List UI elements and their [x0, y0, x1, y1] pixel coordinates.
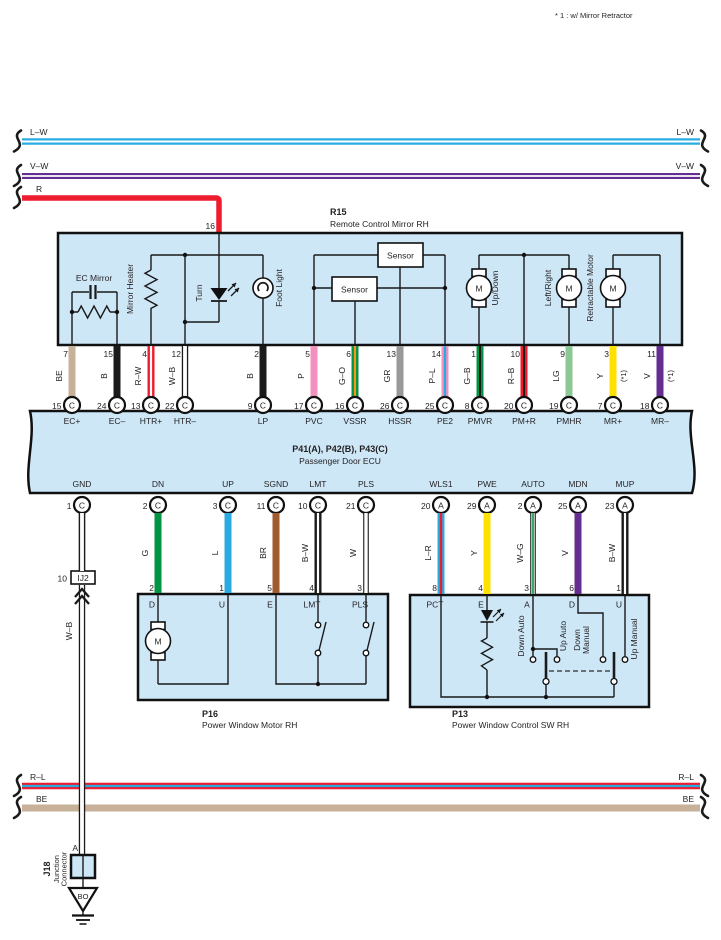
up-auto-contact [554, 657, 560, 663]
wire-color-label: B [245, 373, 255, 379]
r15-pin-number: 6 [346, 349, 351, 359]
wire-footnote-ref: (*1) [666, 369, 675, 382]
wire-color-label: Y [595, 373, 605, 379]
wire-color-label: BE [54, 370, 64, 382]
lmt-switch-contact [315, 622, 321, 628]
component-pin-label: A [524, 600, 530, 610]
connector-number: 1 [67, 501, 72, 511]
j18-pin-a: A [72, 843, 78, 853]
connector-letter: C [521, 401, 527, 411]
wire-color-label: W–B [167, 366, 177, 385]
sensor-upper-label: Sensor [387, 251, 414, 261]
connector-letter: C [657, 401, 663, 411]
ecu-pin-label: SGND [264, 479, 289, 489]
component-pin-label: PCT [427, 600, 444, 610]
wire-color-label: LG [551, 370, 561, 381]
retractable-motor-label: Retractable Motor [585, 254, 595, 322]
ecu-pin-label: PMVR [468, 416, 493, 426]
connector-letter: C [477, 401, 483, 411]
component-pin-label: E [267, 600, 273, 610]
connector-number: 26 [380, 401, 390, 411]
connector-letter: A [484, 501, 490, 511]
component-pin-label: PLS [352, 600, 368, 610]
ecu-pin-label: PM+R [512, 416, 536, 426]
wire-color-label: W–G [515, 543, 525, 562]
connector-letter: C [566, 401, 572, 411]
connector-letter: C [79, 501, 85, 511]
component-pin-number: 3 [357, 583, 362, 593]
svg-text:M: M [475, 284, 482, 294]
ecu-pin-label: EC+ [64, 416, 81, 426]
junction-connector-area: W–B IJ2 10 A J18 Junction Connector BO [42, 571, 97, 924]
component-pin-number: 4 [478, 583, 483, 593]
foot-light-label: Foot Light [274, 268, 284, 306]
component-pin-label: D [149, 600, 155, 610]
wire-color-label: G–B [462, 367, 472, 384]
r15-pin-number: 15 [104, 349, 114, 359]
up-down-label: Up/Down [490, 270, 500, 305]
wire-footnote-ref: (*1) [619, 369, 628, 382]
r15-pin-number: 5 [305, 349, 310, 359]
r15-pin-number: 14 [432, 349, 442, 359]
p13-title: Power Window Control SW RH [452, 720, 569, 730]
component-pin-label: U [616, 600, 622, 610]
down-manual-contact [600, 657, 606, 663]
connector-number: 25 [558, 501, 568, 511]
wire-color-label: B [99, 373, 109, 379]
connector-letter: C [182, 401, 188, 411]
connector-number: 9 [248, 401, 253, 411]
ecu-pin-label: PVC [305, 416, 322, 426]
ecu-pin-label: PWE [477, 479, 497, 489]
p13-id: P13 [452, 709, 468, 719]
component-pin-number: 1 [219, 583, 224, 593]
connector-letter: C [148, 401, 154, 411]
connector-number: 13 [131, 401, 141, 411]
down-auto-contact [530, 657, 536, 663]
up-auto-label: Up Auto [558, 621, 568, 652]
bus-label-vw-left: V–W [30, 161, 48, 171]
r15-pin-number: 10 [511, 349, 521, 359]
connector-number: 15 [52, 401, 62, 411]
wire-color-label: L–R [423, 545, 433, 561]
connector-letter: C [397, 401, 403, 411]
connector-letter: C [260, 401, 266, 411]
wire-color-label: G [140, 550, 150, 557]
connector-number: 24 [97, 401, 107, 411]
connector-number: 19 [549, 401, 559, 411]
r15-pin-number: 13 [387, 349, 397, 359]
ecu-pin-label: PLS [358, 479, 374, 489]
connector-letter: C [352, 401, 358, 411]
ecu-pin-label: VSSR [343, 416, 366, 426]
component-pin-label: E [478, 600, 484, 610]
wire-color-label: GR [382, 370, 392, 383]
bus-label-r-left: R [36, 184, 42, 194]
ij2-label: IJ2 [77, 573, 89, 583]
turn-label: Turn [194, 284, 204, 301]
component-pin-number: 4 [309, 583, 314, 593]
connector-number: 16 [335, 401, 345, 411]
connector-number: 2 [518, 501, 523, 511]
connector-number: 22 [165, 401, 175, 411]
wiring-diagram: * 1 : w/ Mirror Retractor L–W L–W V–W V–… [0, 0, 721, 940]
footnote: * 1 : w/ Mirror Retractor [555, 11, 633, 20]
component-pin-label: U [219, 600, 225, 610]
connector-number: 23 [605, 501, 615, 511]
p13-box [410, 595, 649, 707]
r15-id: R15 [330, 207, 347, 217]
bus-label-rl-left: R–L [30, 772, 46, 782]
ecu-pin-label: PMHR [556, 416, 581, 426]
ecu-pin-label: MDN [568, 479, 587, 489]
r15-title: Remote Control Mirror RH [330, 219, 429, 229]
connector-letter: C [315, 501, 321, 511]
up-manual-label: Up Manual [629, 618, 639, 659]
connector-number: 8 [465, 401, 470, 411]
r15-pin-number: 11 [647, 349, 656, 359]
wire-color-label: L [210, 550, 220, 555]
bus-label-be-left: BE [36, 794, 48, 804]
ecu-pin-label: UP [222, 479, 234, 489]
ij2-number: 10 [58, 574, 68, 584]
bus-r [22, 198, 219, 233]
ecu-pin-label: EC– [109, 416, 126, 426]
r15-pin-number: 3 [604, 349, 609, 359]
ecu-pin-label: DN [152, 479, 164, 489]
wire-color-label: V [642, 373, 652, 379]
wire-color-label: R–W [133, 367, 143, 386]
p16-id: P16 [202, 709, 218, 719]
r15-pin-number: 7 [63, 349, 68, 359]
component-pin-number: 3 [524, 583, 529, 593]
ecu-pin-label: MR+ [604, 416, 622, 426]
wb-wire-label: W–B [64, 621, 74, 640]
connector-number: 2 [143, 501, 148, 511]
connector-number: 11 [257, 501, 266, 511]
foot-light-bulb-icon [253, 278, 273, 298]
component-pin-number: 5 [267, 583, 272, 593]
bus-label-rl-right: R–L [678, 772, 694, 782]
component-pin-number: 1 [616, 583, 621, 593]
connector-letter: C [311, 401, 317, 411]
wire-color-label: P [296, 373, 306, 379]
ecu-pin-label: MR– [651, 416, 669, 426]
svg-text:M: M [609, 284, 616, 294]
connector-number: 17 [294, 401, 304, 411]
connector-number: 25 [425, 401, 435, 411]
component-pin-number: 6 [569, 583, 574, 593]
bus-label-lw-right: L–W [677, 127, 694, 137]
p16-title: Power Window Motor RH [202, 720, 297, 730]
component-pin-number: 2 [149, 583, 154, 593]
connector-letter: A [530, 501, 536, 511]
connector-number: 20 [504, 401, 514, 411]
ecu-title: Passenger Door ECU [299, 456, 381, 466]
r15-pin16-number: 16 [206, 221, 216, 231]
left-right-label: Left/Right [543, 269, 553, 306]
r15-pin-number: 9 [560, 349, 565, 359]
ecu-pin-label: PE2 [437, 416, 453, 426]
connector-number: 29 [467, 501, 477, 511]
connector-number: 20 [421, 501, 431, 511]
connector-number: 7 [598, 401, 603, 411]
connector-letter: C [363, 501, 369, 511]
wire-color-label: BR [258, 547, 268, 559]
r15-pin-number: 12 [172, 349, 182, 359]
connector-letter: C [225, 501, 231, 511]
connector-letter: C [442, 401, 448, 411]
wire-color-label: Y [469, 550, 479, 556]
component-pin-label: LMT [304, 600, 321, 610]
mirror-heater-label: Mirror Heater [125, 264, 135, 314]
j18-id: J18 [42, 861, 52, 876]
connector-letter: C [69, 401, 75, 411]
down-manual-label-2: Manual [581, 626, 591, 654]
connector-number: 10 [298, 501, 308, 511]
ecu-pin-label: LP [258, 416, 269, 426]
wire-color-label: P–L [427, 368, 437, 383]
ecu-id: P41(A), P42(B), P43(C) [292, 444, 388, 454]
ecu-pin-label: HTR+ [140, 416, 162, 426]
wire-color-label: V [560, 550, 570, 556]
r15-pin-number: 2 [254, 349, 259, 359]
connector-letter: A [438, 501, 444, 511]
svg-text:M: M [154, 637, 161, 647]
up-manual-contact [622, 657, 628, 663]
connector-number: 3 [213, 501, 218, 511]
svg-text:M: M [565, 284, 572, 294]
connector-letter: A [622, 501, 628, 511]
ecu-pin-label: AUTO [521, 479, 545, 489]
connector-letter: C [155, 501, 161, 511]
ec-mirror-label: EC Mirror [76, 273, 113, 283]
bus-label-be-right: BE [683, 794, 695, 804]
connector-letter: C [610, 401, 616, 411]
wire-color-label: G–O [337, 367, 347, 385]
connector-letter: A [575, 501, 581, 511]
down-auto-label: Down Auto [516, 615, 526, 656]
ecu-pin-label: HTR– [174, 416, 196, 426]
connector-number: 18 [640, 401, 650, 411]
connector-number: 21 [346, 501, 356, 511]
bus-label-vw-right: V–W [676, 161, 694, 171]
wire-color-label: R–B [506, 367, 516, 384]
ecu-pin-label: LMT [310, 479, 327, 489]
ecu-pin-label: MUP [616, 479, 635, 489]
sensor-lower-label: Sensor [341, 285, 368, 295]
wire-color-label: W [348, 549, 358, 557]
ground-code: BO [78, 892, 89, 901]
connector-letter: C [114, 401, 120, 411]
component-pin-label: D [569, 600, 575, 610]
ecu-pin-label: WLS1 [429, 479, 452, 489]
pls-switch-contact [363, 622, 369, 628]
j18-title-2: Connector [60, 851, 69, 886]
component-pin-number: 8 [432, 583, 437, 593]
r15-pin-number: 1 [471, 349, 476, 359]
bus-label-lw-left: L–W [30, 127, 47, 137]
ecu-pin-label: GND [73, 479, 92, 489]
wire-color-label: B–W [607, 544, 617, 562]
wire-color-label: B–W [300, 544, 310, 562]
r15-pin-number: 4 [142, 349, 147, 359]
connector-letter: C [273, 501, 279, 511]
ecu-pin-label: HSSR [388, 416, 412, 426]
wiring-diagram-page: * 1 : w/ Mirror Retractor L–W L–W V–W V–… [0, 0, 721, 940]
